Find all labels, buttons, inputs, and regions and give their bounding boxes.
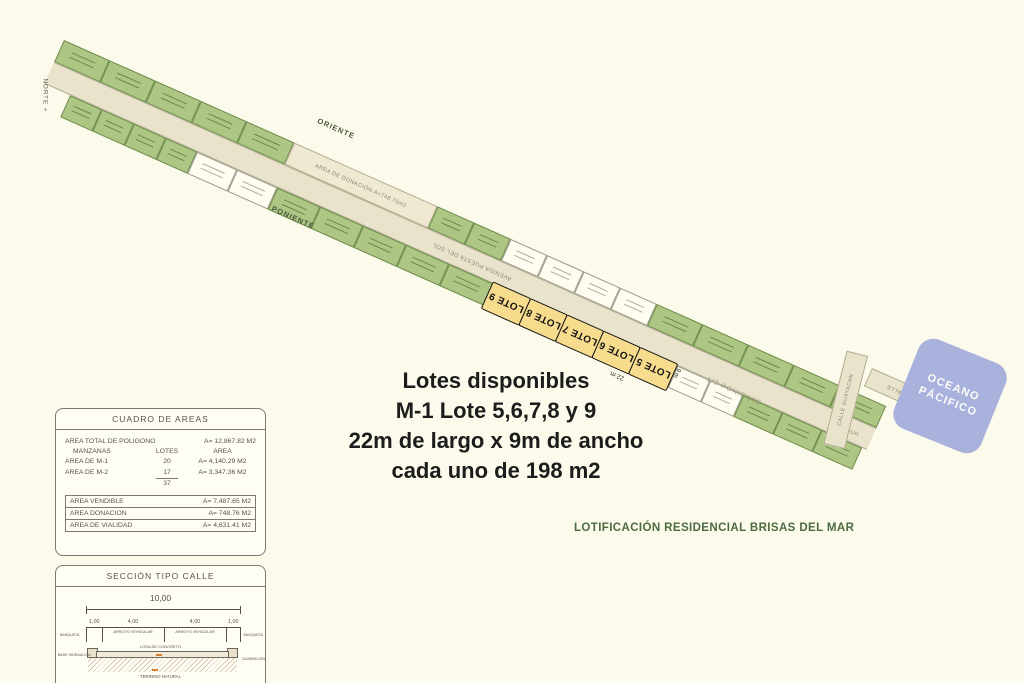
lots-total-value: 37 [156, 478, 178, 489]
street-section-title: SECCIÓN TIPO CALLE [56, 566, 265, 587]
total-area-row: AREA TOTAL DE POLIGONO A= 12,867.82 M2 [65, 437, 256, 447]
project-title: LOTIFICACIÓN RESIDENCIAL BRISAS DEL MAR [574, 522, 854, 534]
street-section-panel: SECCIÓN TIPO CALLE 10,00 1,00 4,00 ARROY… [55, 565, 266, 683]
segment-banqueta-right: 1,00 [226, 628, 242, 642]
dim-4-right: 4,00 [165, 619, 226, 625]
base-hidraulica-label: BASE HIDRAULICA [58, 653, 90, 657]
segment-arroyo-right: 4,00 ARROYO VEHICULAR [164, 628, 226, 642]
oriente-label: ORIENTE [316, 116, 357, 141]
ocean-pacifico-block: OCEANO PÁCIFICO [888, 334, 1011, 458]
promo-line: M-1 Lote 5,6,7,8 y 9 [328, 396, 664, 426]
summary-value: A= 7,487.65 M2 [203, 496, 251, 507]
dim-4-left: 4,00 [103, 619, 164, 625]
areas-cell: AREA DE M-1 [65, 457, 145, 467]
dim-segments: 1,00 4,00 ARROYO VEHICULAR 4,00 ARROYO V… [86, 627, 241, 642]
areas-table-panel: CUADRO DE AREAS AREA TOTAL DE POLIGONO A… [55, 408, 266, 556]
guarnicion-label: GUARNICION [242, 657, 265, 661]
lots-total-row: 37 [65, 478, 256, 489]
summary-label: AREA DE VIALIDAD [70, 520, 132, 531]
areas-cell: 17 [145, 468, 189, 478]
terreno-natural-label: TERRENO NATURAL [56, 674, 265, 679]
segment-banqueta-left: 1,00 [86, 628, 102, 642]
arroyo-label-left: ARROYO VEHICULAR [103, 630, 164, 634]
promo-line: cada uno de 198 m2 [328, 456, 664, 486]
areas-summary: AREA VENDIBLEA= 7,487.65 M2AREA DONACION… [65, 495, 256, 532]
banqueta-label-right: BANQUETA [243, 633, 263, 637]
summary-value: A= 4,631.41 M2 [203, 520, 251, 531]
arroyo-label-right: ARROYO VEHICULAR [165, 630, 226, 634]
areas-header-row: MANZANAS LOTES AREA [65, 447, 256, 457]
orange-accent-1 [156, 654, 162, 656]
orange-accent-2 [152, 669, 158, 671]
dim-1-left: 1,00 [87, 619, 102, 625]
north-label: NORTE + [42, 61, 49, 131]
promo-line: Lotes disponibles [328, 366, 664, 396]
total-area-label: AREA TOTAL DE POLIGONO [65, 437, 155, 447]
header-lotes: LOTES [145, 447, 189, 457]
total-area-value: A= 12,867.82 M2 [204, 437, 256, 447]
areas-cell: 20 [145, 457, 189, 467]
areas-cell: A= 3,347.36 M2 [189, 468, 256, 478]
summary-label: AREA DONACION [70, 508, 127, 519]
areas-table-row: AREA DE M-120A= 4,140.29 M2 [65, 457, 256, 467]
site-plan-canvas: AREA DE DONACIÓN A=748.76m2 AVENIDA PUES… [0, 0, 1024, 683]
areas-cell: A= 4,140.29 M2 [189, 457, 256, 467]
summary-value: A= 748.76 M2 [208, 508, 251, 519]
summary-row: AREA DE VIALIDADA= 4,631.41 M2 [65, 519, 256, 532]
areas-table-row: AREA DE M-217A= 3,347.36 M2 [65, 468, 256, 478]
promo-line: 22m de largo x 9m de ancho [328, 426, 664, 456]
header-manzanas: MANZANAS [65, 447, 145, 457]
segment-arroyo-left: 4,00 ARROYO VEHICULAR [102, 628, 164, 642]
header-area: AREA [189, 447, 256, 457]
terrain-hatch [88, 657, 237, 672]
banqueta-label-left: BANQUETA [60, 633, 80, 637]
dim-1-right: 1,00 [227, 619, 241, 625]
areas-cell: AREA DE M-2 [65, 468, 145, 478]
total-width-dim: 10,00 [56, 593, 265, 603]
dim-line-total [86, 609, 241, 615]
promo-text: Lotes disponiblesM-1 Lote 5,6,7,8 y 922m… [328, 366, 664, 486]
areas-table-title: CUADRO DE AREAS [56, 409, 265, 430]
summary-label: AREA VENDIBLE [70, 496, 124, 507]
